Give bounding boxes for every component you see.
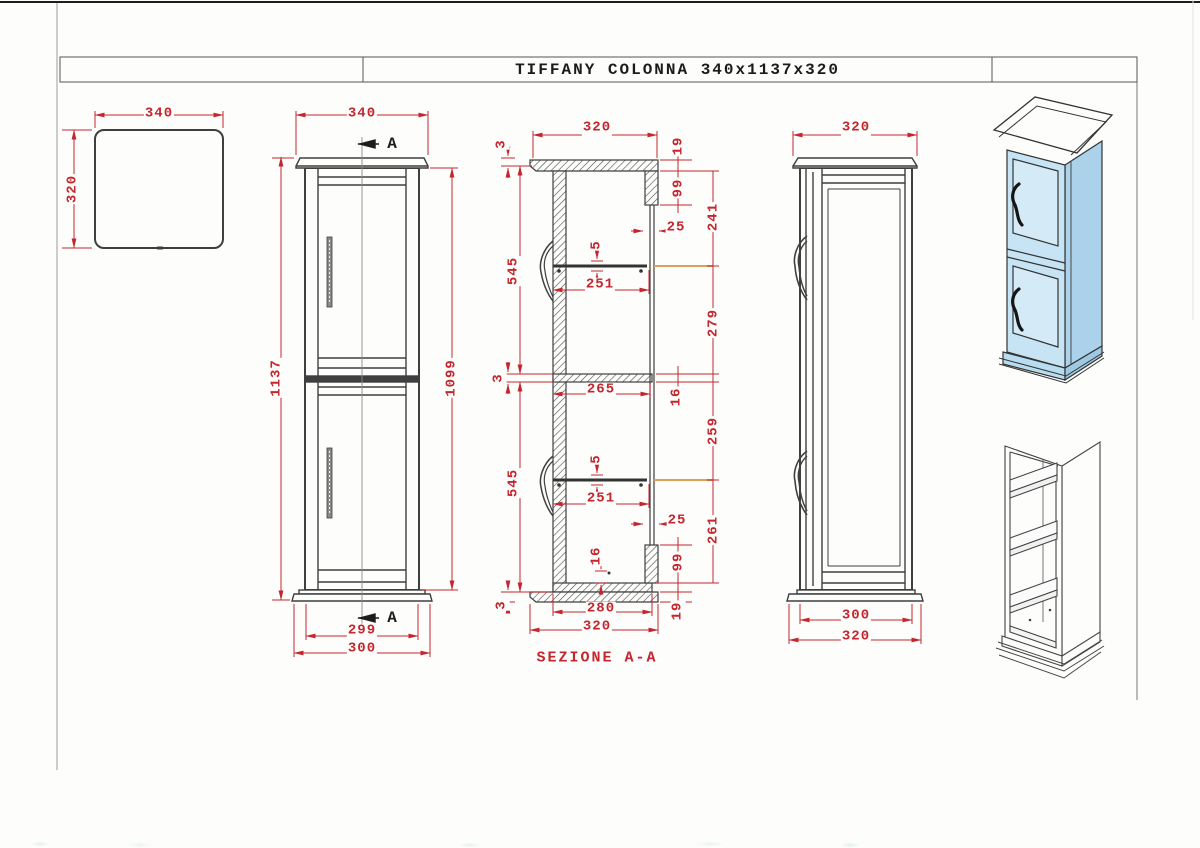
dim-sec-shelf-depth-top: 251 xyxy=(585,278,615,293)
side-view-drawing xyxy=(787,131,923,644)
dim-sec-bottom-offset: 16 xyxy=(590,546,605,567)
top-view-drawing xyxy=(62,111,223,248)
dim-sec-divider-thickness: 16 xyxy=(670,387,685,408)
dim-topview-width: 340 xyxy=(144,107,174,122)
title-block: TIFFANY COLONNA 340x1137x320 xyxy=(363,57,992,82)
dim-sec-lip-bottom: 3 xyxy=(495,599,510,610)
dim-sec-shelf-to-divider: 279 xyxy=(707,308,722,338)
dim-sec-depth-top: 320 xyxy=(582,121,612,136)
dim-sec-lip-top: 3 xyxy=(495,138,510,149)
drawing-sheet: { "title_block": { "title": "TIFFANY COL… xyxy=(0,0,1200,848)
dim-front-height-carcass: 1099 xyxy=(445,358,460,398)
dim-front-width: 340 xyxy=(347,107,377,122)
dim-sec-shelf-thickness-top: 5 xyxy=(590,239,605,250)
section-marker-top: A xyxy=(387,135,397,153)
dim-side-depth-base: 320 xyxy=(841,630,871,645)
iso-view-doors xyxy=(994,97,1112,383)
dim-sec-lip-mid: 3 xyxy=(492,372,507,383)
dim-front-base-width: 300 xyxy=(347,642,377,657)
dim-sec-back-rail-top: 99 xyxy=(672,178,687,199)
dim-sec-shelf-to-bottom: 261 xyxy=(707,515,722,545)
dim-sec-back-rail-bottom: 99 xyxy=(672,552,687,573)
dim-sec-door-height-top: 545 xyxy=(507,256,522,286)
section-marker-bottom: A xyxy=(387,609,397,627)
dim-sec-depth-bottom: 320 xyxy=(582,620,612,635)
dim-sec-shelf-depth-bottom: 251 xyxy=(586,492,616,507)
dim-sec-opening-top: 241 xyxy=(707,202,722,232)
section-label: SEZIONE A-A xyxy=(536,650,657,667)
front-view-drawing xyxy=(272,111,458,657)
dim-sec-back-rail-width-top: 25 xyxy=(666,221,687,236)
dim-sec-shelf-thickness-bottom: 5 xyxy=(590,453,605,464)
scan-artifact xyxy=(0,838,1200,848)
dim-sec-divider-depth: 265 xyxy=(586,383,616,398)
dim-sec-top-thickness: 19 xyxy=(672,136,687,157)
dim-topview-depth: 320 xyxy=(66,174,81,204)
dim-front-door-width: 299 xyxy=(347,624,377,639)
dim-side-depth-body: 300 xyxy=(841,609,871,624)
dim-side-depth-top: 320 xyxy=(841,121,871,136)
dim-sec-door-height-bottom: 545 xyxy=(507,468,522,498)
dim-sec-back-rail-width-bottom: 25 xyxy=(667,514,688,529)
iso-view-shelves xyxy=(996,442,1104,678)
dim-front-height-total: 1137 xyxy=(270,358,285,398)
section-shelves xyxy=(553,266,713,575)
dim-sec-divider-to-shelf: 259 xyxy=(707,416,722,446)
dim-sec-bottom-thickness: 19 xyxy=(671,601,686,622)
drawing-title: TIFFANY COLONNA 340x1137x320 xyxy=(515,61,840,79)
dim-sec-bottom-inner-depth: 280 xyxy=(586,602,616,617)
